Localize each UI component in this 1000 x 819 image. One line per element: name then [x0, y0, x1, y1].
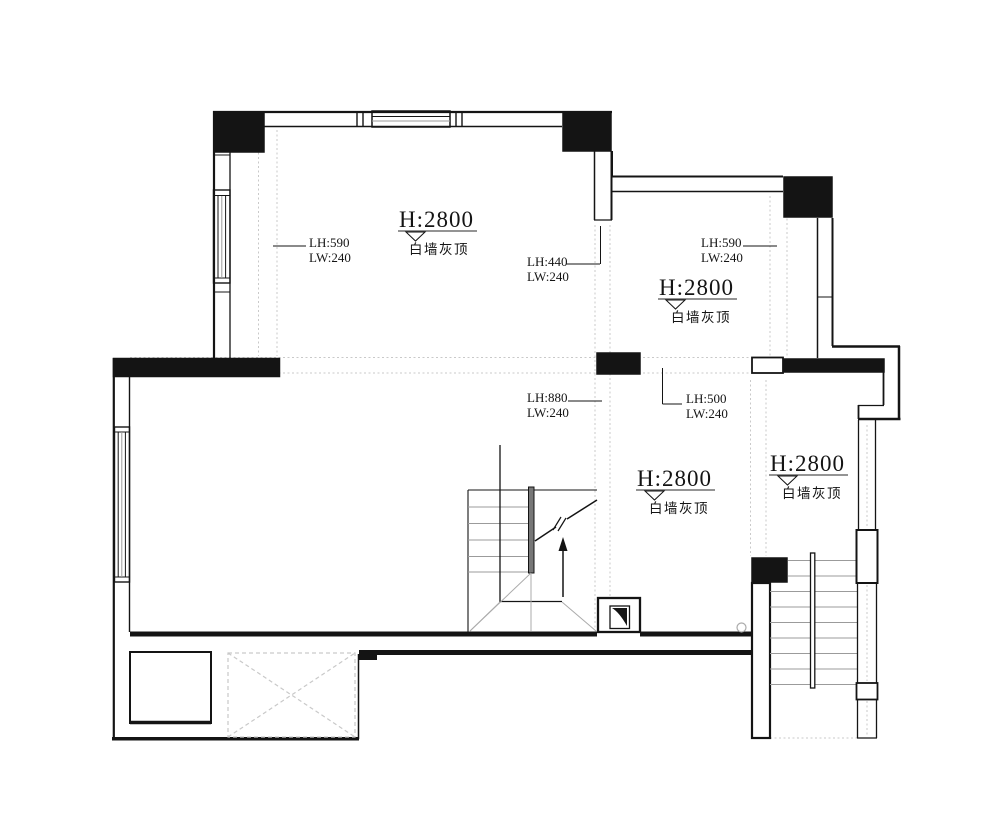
wall-end-circle	[737, 623, 746, 632]
room-height-label: H:2800	[659, 275, 734, 300]
column-right-stair	[752, 558, 787, 582]
room-finish-label: 白墙灰顶	[409, 242, 469, 257]
room-label-right: H:2800 白墙灰顶	[769, 451, 848, 501]
door-niche	[598, 598, 640, 632]
interior-wall-band	[130, 632, 597, 637]
wall-band-left	[114, 359, 280, 377]
beam-label: LW:240	[686, 406, 728, 421]
planter-box	[130, 652, 211, 723]
room-height-label: H:2800	[399, 207, 474, 232]
central-staircase	[468, 445, 597, 632]
beam-annotation-center-mid: LH:880 LW:240	[527, 390, 602, 420]
level-triangle-icon	[778, 476, 797, 485]
window-top	[372, 111, 450, 127]
wall-band-center	[597, 353, 640, 374]
room-label-center: H:2800 白墙灰顶	[636, 466, 715, 516]
beam-label: LW:240	[309, 250, 351, 265]
beam-label: LW:240	[527, 405, 569, 420]
column-top-right	[784, 177, 832, 217]
wall-box	[857, 530, 878, 583]
lower-level-features	[130, 583, 770, 738]
bottom-exterior-wall	[359, 650, 752, 655]
winder-line	[562, 602, 596, 631]
beam-annotation-center-top: LH:440 LW:240	[527, 226, 601, 284]
beam-label: LH:880	[527, 390, 567, 405]
level-triangle-icon	[666, 300, 685, 309]
room-label-top-right: H:2800 白墙灰顶	[658, 275, 737, 325]
room-finish-label: 白墙灰顶	[671, 310, 731, 325]
beam-label: LW:240	[701, 250, 743, 265]
stair-handrail	[811, 553, 815, 688]
beam-label: LW:240	[527, 269, 569, 284]
beam-annotation-center-right: LH:500 LW:240	[663, 368, 728, 421]
level-triangle-icon	[645, 491, 664, 500]
beam-annotation-right-top: LH:590 LW:240	[701, 235, 777, 265]
room-label-top-left: H:2800 白墙灰顶	[398, 207, 477, 257]
room-finish-label: 白墙灰顶	[649, 501, 709, 516]
wall-band-right	[784, 359, 884, 372]
wall-box	[857, 683, 878, 700]
room-finish-label: 白墙灰顶	[782, 486, 842, 501]
level-triangle-icon	[406, 232, 425, 241]
beam-label: LH:590	[309, 235, 349, 250]
room-height-label: H:2800	[637, 466, 712, 491]
column-top-left	[214, 112, 264, 152]
winder-line	[470, 602, 500, 631]
wall-notch	[359, 655, 377, 660]
room-height-label: H:2800	[770, 451, 845, 476]
direction-line	[567, 500, 597, 519]
beam-label: LH:500	[686, 391, 726, 406]
beam-label: LH:440	[527, 254, 567, 269]
column-top-center	[563, 112, 611, 151]
wall-band-white	[752, 358, 783, 374]
stair-pier	[752, 583, 770, 738]
beam-bands	[114, 353, 885, 377]
stair-center-rail	[529, 487, 535, 573]
interior-wall-band	[640, 632, 752, 637]
floor-plan-sheet: LH:590 LW:240 LH:440 LW:240 LH:590 LW:24…	[0, 0, 1000, 819]
beam-annotation-left: LH:590 LW:240	[273, 235, 351, 265]
ceiling-plan-drawing: LH:590 LW:240 LH:440 LW:240 LH:590 LW:24…	[0, 0, 1000, 819]
beam-label: LH:590	[701, 235, 741, 250]
up-arrow-head	[559, 537, 568, 551]
structural-columns	[214, 112, 832, 582]
windows	[114, 111, 462, 582]
